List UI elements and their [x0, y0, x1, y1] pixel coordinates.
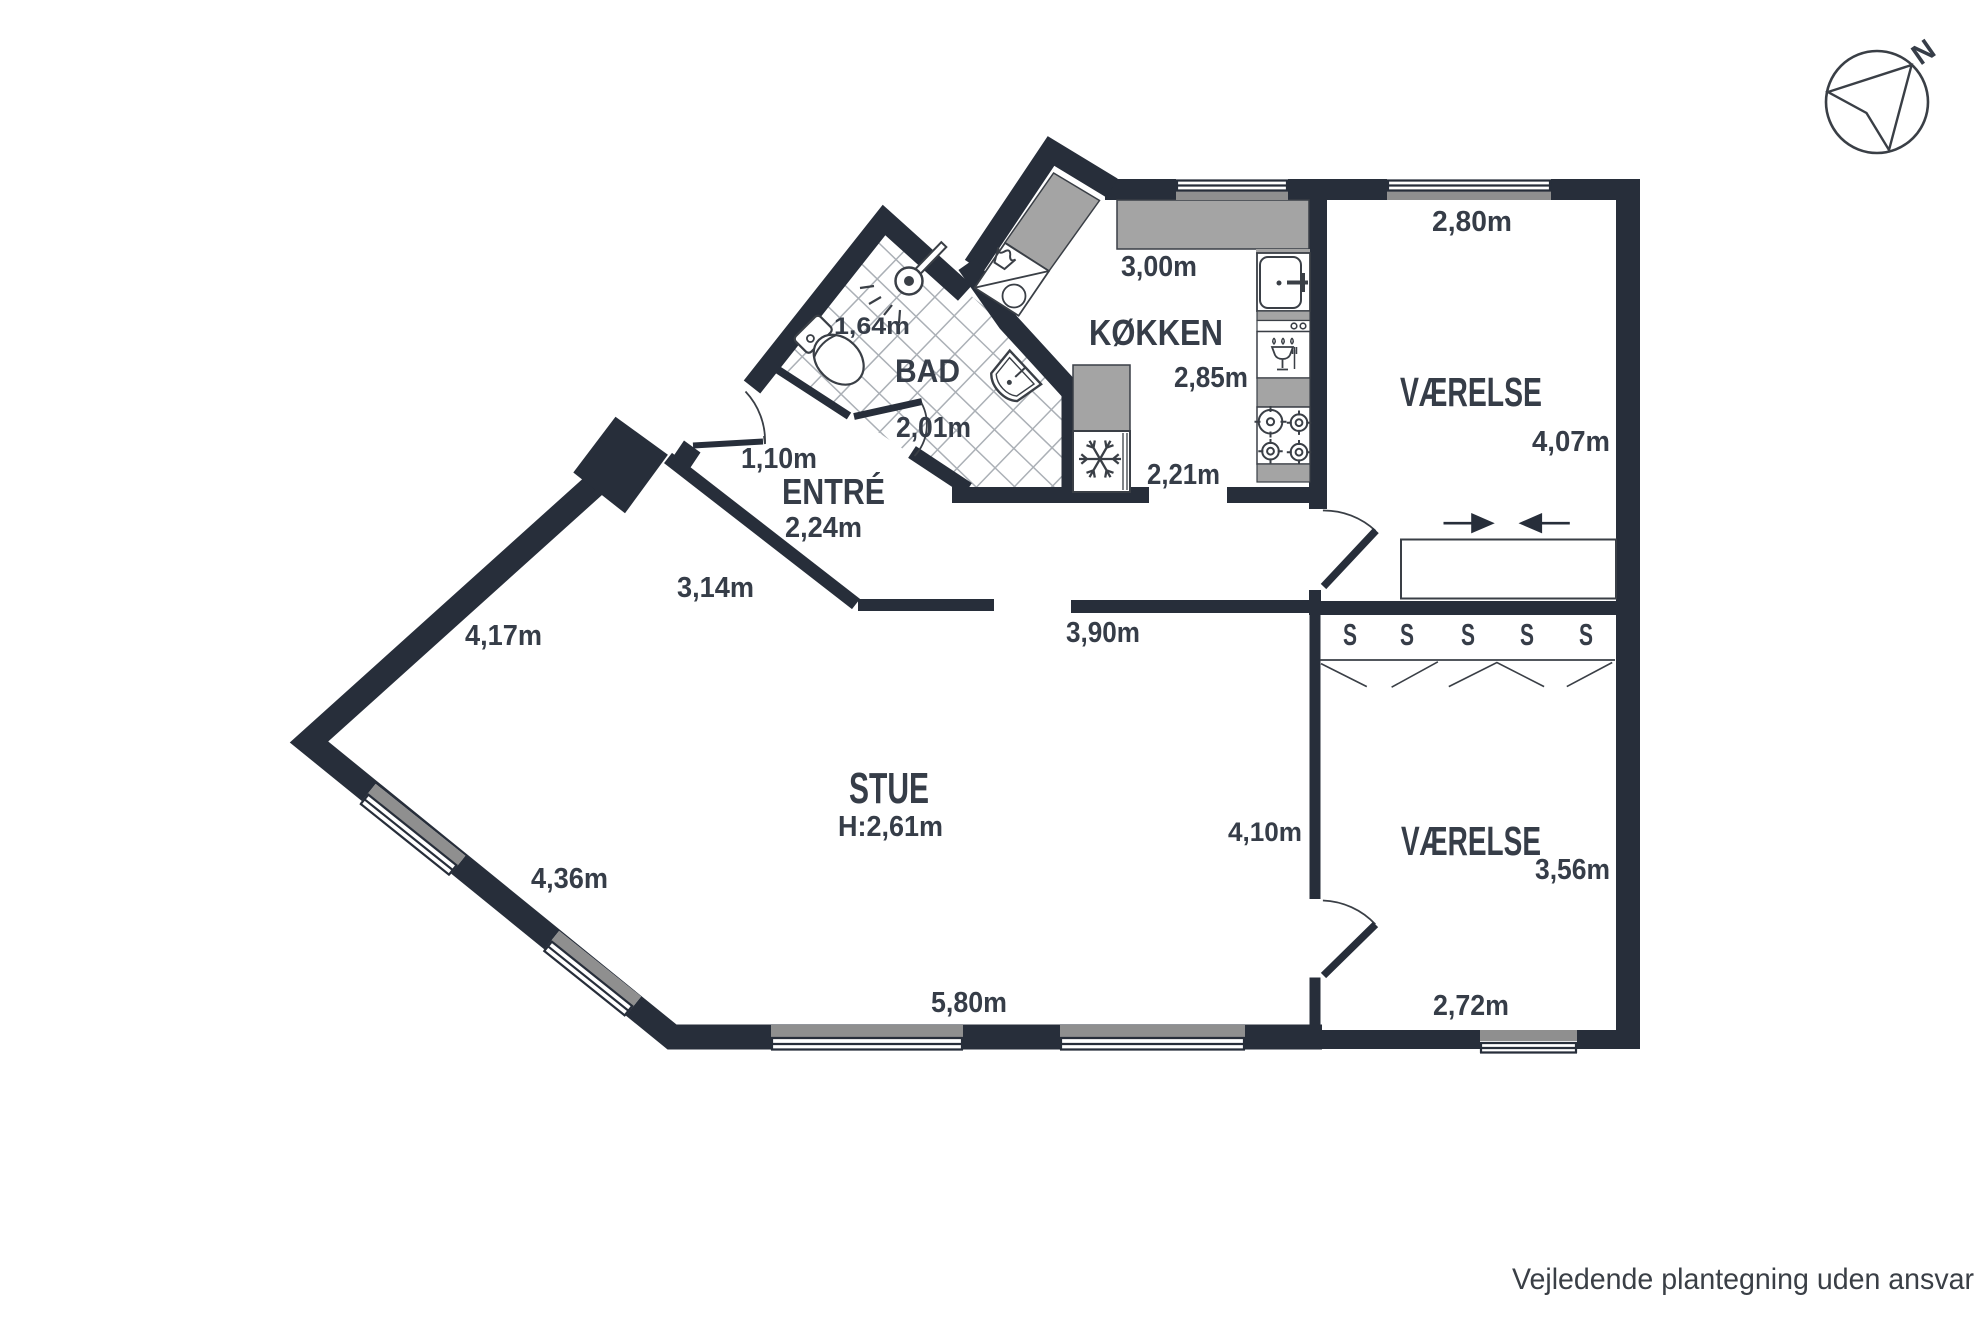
svg-text:BAD: BAD [895, 353, 960, 389]
svg-text:4,10m: 4,10m [1228, 817, 1302, 847]
svg-text:2,80m: 2,80m [1432, 206, 1512, 238]
svg-text:2,24m: 2,24m [785, 512, 862, 544]
svg-text:3,14m: 3,14m [677, 572, 754, 604]
svg-text:S: S [1461, 617, 1475, 652]
svg-text:VÆRELSE: VÆRELSE [1401, 818, 1541, 864]
svg-text:4,17m: 4,17m [465, 620, 542, 652]
svg-text:ENTRÉ: ENTRÉ [782, 471, 885, 512]
svg-text:1,64m: 1,64m [834, 313, 910, 340]
svg-text:S: S [1400, 617, 1414, 652]
svg-text:4,07m: 4,07m [1532, 426, 1610, 458]
svg-text:3,56m: 3,56m [1535, 854, 1610, 886]
svg-text:KØKKEN: KØKKEN [1089, 312, 1223, 353]
svg-text:S: S [1343, 617, 1357, 652]
svg-text:1,10m: 1,10m [741, 443, 817, 475]
svg-text:5,80m: 5,80m [931, 987, 1007, 1019]
svg-text:3,00m: 3,00m [1121, 251, 1197, 283]
svg-text:S: S [1520, 617, 1534, 652]
svg-text:2,01m: 2,01m [896, 412, 971, 444]
svg-text:2,85m: 2,85m [1174, 362, 1248, 394]
svg-text:Vejledende plantegning uden an: Vejledende plantegning uden ansvar [1512, 1263, 1974, 1296]
svg-text:S: S [1579, 617, 1593, 652]
svg-text:4,36m: 4,36m [531, 863, 608, 895]
svg-text:2,72m: 2,72m [1433, 990, 1509, 1022]
svg-text:VÆRELSE: VÆRELSE [1400, 369, 1542, 415]
svg-text:H:2,61m: H:2,61m [838, 811, 943, 843]
svg-text:3,90m: 3,90m [1066, 617, 1140, 649]
svg-text:STUE: STUE [849, 764, 929, 813]
svg-text:2,21m: 2,21m [1147, 459, 1220, 491]
